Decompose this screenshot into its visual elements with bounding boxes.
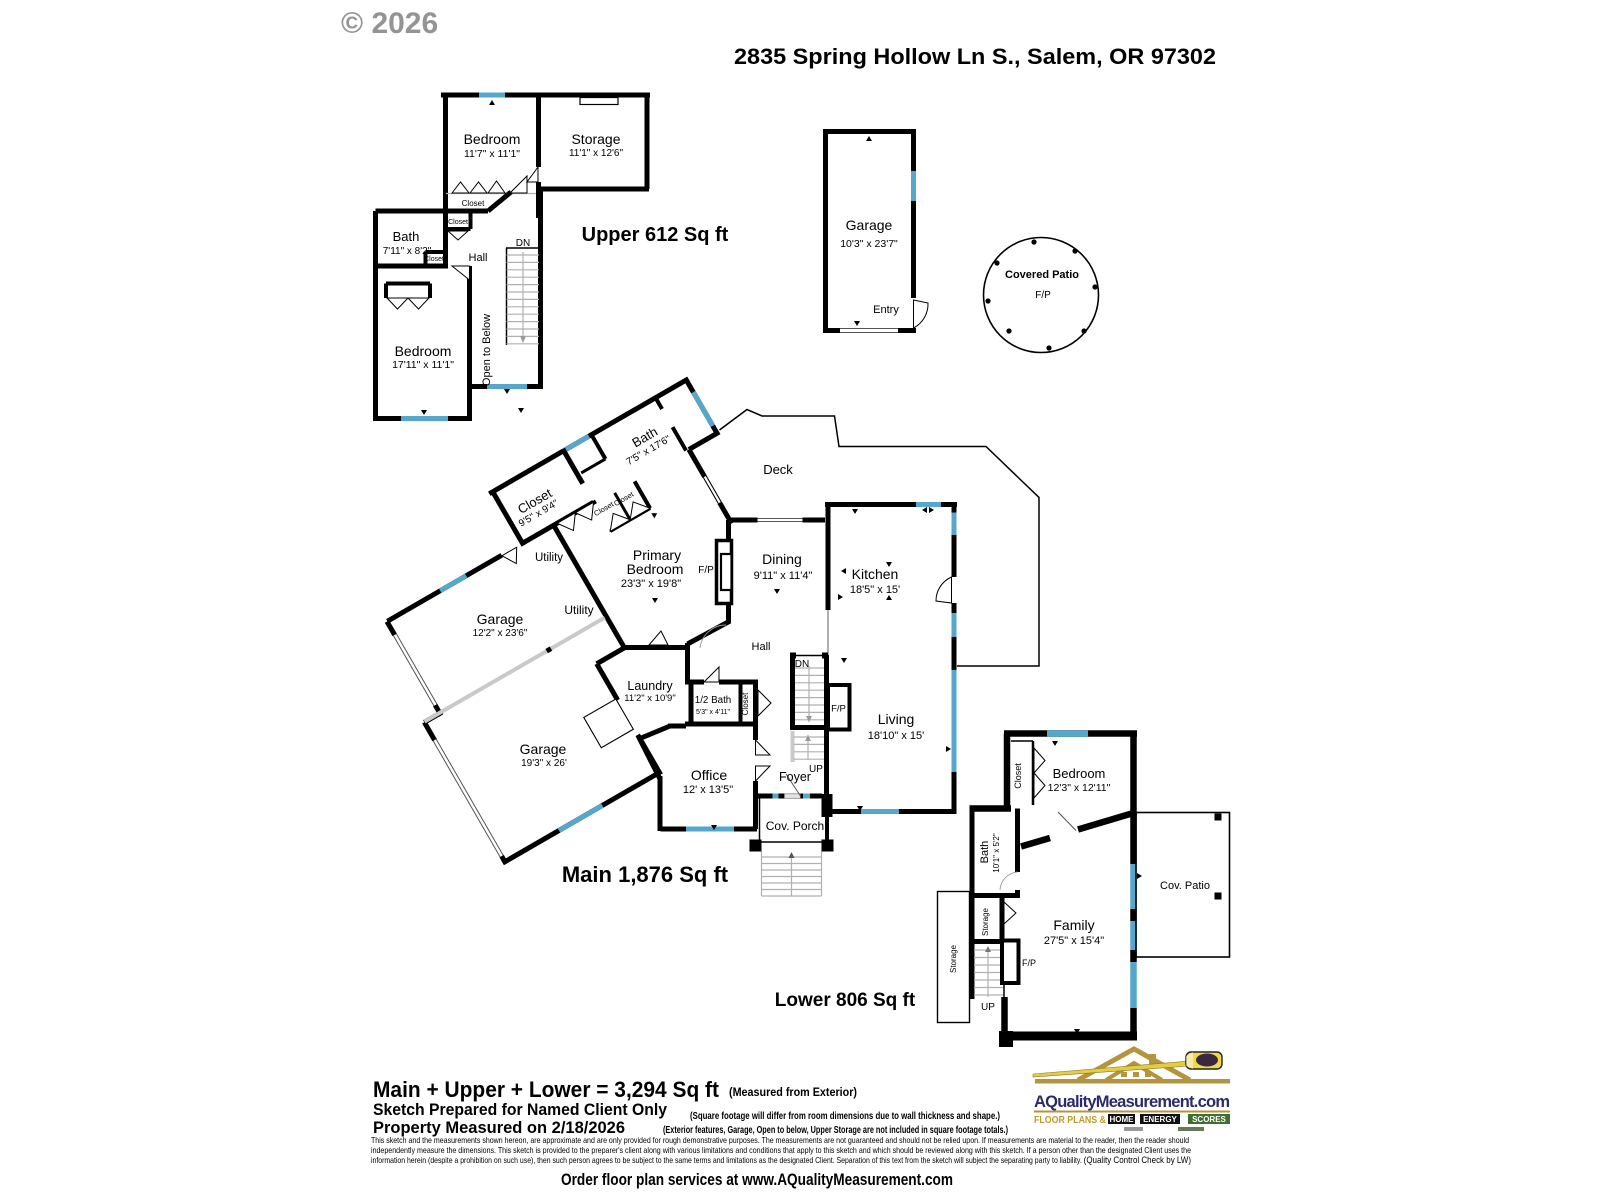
svg-text:11'1" x 12'6": 11'1" x 12'6" [569, 148, 624, 159]
svg-text:Hall: Hall [469, 252, 488, 264]
svg-text:Garage: Garage [477, 611, 524, 627]
svg-text:Bath: Bath [979, 841, 991, 864]
svg-text:Lower 806 Sq ft: Lower 806 Sq ft [775, 990, 916, 1011]
svg-text:UP: UP [809, 764, 823, 775]
svg-text:Upper 612 Sq ft: Upper 612 Sq ft [582, 224, 729, 246]
svg-text:F/P: F/P [831, 704, 846, 715]
svg-text:Foyer: Foyer [779, 770, 811, 784]
svg-text:Hall: Hall [752, 641, 771, 653]
svg-text:9'11" x 11'4": 9'11" x 11'4" [754, 570, 813, 582]
svg-text:Bedroom: Bedroom [627, 561, 684, 577]
svg-text:SCORES: SCORES [1192, 1115, 1226, 1124]
svg-text:Storage: Storage [571, 131, 620, 147]
svg-text:Living: Living [878, 711, 915, 727]
svg-text:Deck: Deck [763, 462, 793, 477]
svg-text:Order floor plan services at w: Order floor plan services at www.AQualit… [561, 1170, 953, 1189]
svg-text:Family: Family [1053, 917, 1094, 933]
svg-text:Property Measured on 2/18/2026: Property Measured on 2/18/2026 [373, 1118, 625, 1137]
svg-text:18'10" x 15': 18'10" x 15' [868, 730, 924, 742]
svg-text:12'3" x 12'11": 12'3" x 12'11" [1048, 782, 1111, 794]
svg-text:ENERGY: ENERGY [1143, 1115, 1177, 1124]
svg-text:(Measured from Exterior): (Measured from Exterior) [729, 1085, 857, 1099]
svg-text:F/P: F/P [1022, 958, 1036, 968]
svg-text:AQualityMeasurement.com: AQualityMeasurement.com [1034, 1093, 1230, 1111]
svg-text:Main 1,876 Sq ft: Main 1,876 Sq ft [562, 862, 729, 887]
svg-text:Office: Office [691, 767, 728, 783]
svg-text:11'7" x 11'1": 11'7" x 11'1" [464, 148, 520, 160]
svg-text:Laundry: Laundry [627, 679, 673, 693]
svg-text:Bedroom: Bedroom [1053, 766, 1106, 781]
svg-text:Bedroom: Bedroom [464, 131, 521, 147]
svg-text:Closet: Closet [741, 692, 750, 715]
svg-text:This sketch and the measuremen: This sketch and the measurements shown h… [371, 1136, 1189, 1145]
svg-text:(Exterior features, Garage, Op: (Exterior features, Garage, Open to belo… [663, 1124, 1008, 1136]
svg-text:Entry: Entry [873, 304, 899, 316]
svg-text:F/P: F/P [698, 565, 714, 576]
svg-text:© 2026: © 2026 [341, 7, 438, 40]
svg-text:12' x 13'5": 12' x 13'5" [683, 784, 733, 796]
svg-text:Cov. Porch: Cov. Porch [766, 819, 824, 833]
svg-text:Bedroom: Bedroom [395, 343, 452, 359]
svg-text:Utility: Utility [564, 603, 593, 617]
svg-text:independently measure the dime: independently measure the dimensions. Th… [371, 1146, 1191, 1155]
svg-text:Open to Below: Open to Below [481, 314, 493, 386]
svg-text:Covered Patio: Covered Patio [1005, 269, 1079, 281]
svg-text:HOME: HOME [1110, 1115, 1135, 1124]
svg-text:2835 Spring Hollow Ln S., Sale: 2835 Spring Hollow Ln S., Salem, OR 9730… [734, 44, 1216, 69]
svg-text:10'3" x 23'7": 10'3" x 23'7" [840, 238, 898, 250]
svg-text:5'3" x 4'11": 5'3" x 4'11" [696, 709, 730, 716]
svg-text:Dining: Dining [762, 551, 802, 567]
svg-text:10'1" x 5'2": 10'1" x 5'2" [992, 833, 1001, 873]
svg-text:Garage: Garage [520, 741, 567, 757]
svg-text:(Square footage will differ fr: (Square footage will differ from room di… [690, 1110, 1000, 1122]
svg-text:F/P: F/P [1035, 290, 1051, 301]
svg-text:18'5" x 15': 18'5" x 15' [850, 584, 900, 596]
svg-text:19'3" x 26': 19'3" x 26' [521, 758, 567, 769]
svg-text:Kitchen: Kitchen [852, 566, 899, 582]
svg-text:Garage: Garage [846, 217, 893, 233]
svg-text:information herein (despite a: information herein (despite a prohibitio… [371, 1155, 1191, 1166]
svg-text:11'2" x 10'9": 11'2" x 10'9" [624, 693, 675, 704]
svg-text:Storage: Storage [949, 944, 958, 973]
svg-text:Cov. Patio: Cov. Patio [1160, 880, 1210, 892]
svg-text:12'2" x 23'6": 12'2" x 23'6" [473, 628, 528, 639]
svg-text:Storage: Storage [981, 907, 990, 936]
svg-text:Closet: Closet [462, 199, 485, 208]
svg-text:Closet: Closet [424, 256, 444, 263]
svg-text:FLOOR PLANS &: FLOOR PLANS & [1034, 1115, 1106, 1126]
svg-text:27'5" x 15'4": 27'5" x 15'4" [1044, 935, 1104, 947]
svg-text:Sketch Prepared for Named Clie: Sketch Prepared for Named Client Only [373, 1100, 668, 1119]
svg-text:Closet: Closet [448, 219, 468, 226]
svg-text:1/2 Bath: 1/2 Bath [695, 695, 732, 706]
svg-text:DN: DN [516, 238, 530, 249]
svg-text:UP: UP [981, 1002, 995, 1013]
svg-text:Utility: Utility [535, 552, 563, 564]
svg-text:17'11" x 11'1": 17'11" x 11'1" [392, 359, 454, 371]
svg-text:Bath: Bath [393, 229, 420, 244]
svg-text:Main + Upper + Lower = 3,294 S: Main + Upper + Lower = 3,294 Sq ft [373, 1077, 720, 1102]
svg-text:Closet: Closet [1013, 763, 1023, 789]
svg-text:DN: DN [795, 659, 809, 670]
svg-text:23'3" x 19'8": 23'3" x 19'8" [621, 578, 681, 590]
